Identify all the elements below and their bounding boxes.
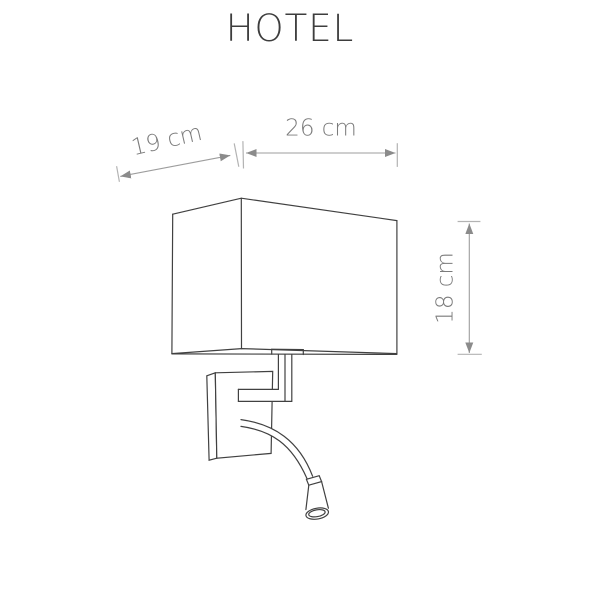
dimension-line-height [458,222,482,355]
bracket-arm [238,389,291,401]
dimension-line-width [243,141,397,168]
wall-mount-bracket [207,371,273,460]
technical-drawing-page: HOTEL 19 cm 26 cm 18 cm [0,0,600,600]
led-lens [305,506,329,521]
led-head [305,476,329,521]
lampshade-outline [172,198,397,354]
wall-lamp-technical-drawing [0,0,600,600]
dimension-line-depth [117,143,239,181]
